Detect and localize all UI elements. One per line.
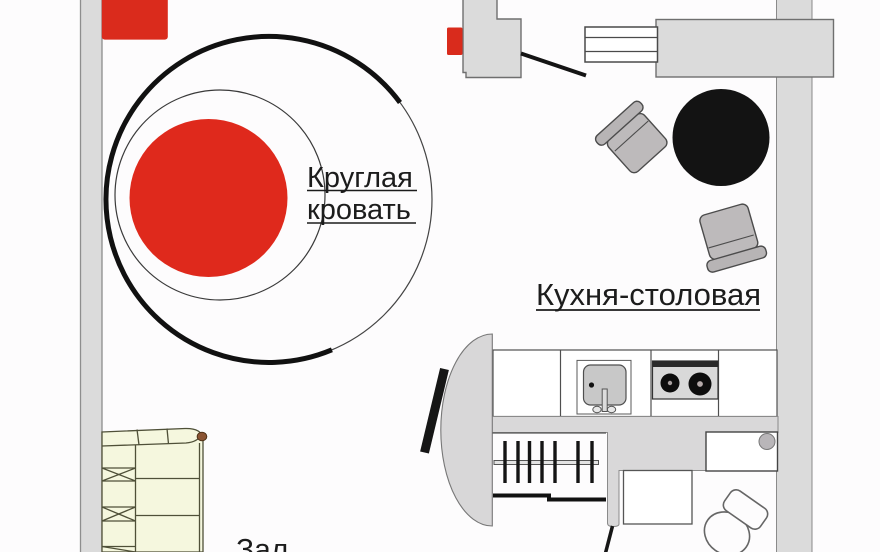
svg-text:Зал: Зал — [236, 534, 288, 552]
svg-text:Круглая: Круглая — [307, 162, 413, 194]
svg-text:Кухня-столовая: Кухня-столовая — [536, 277, 761, 312]
svg-text:кровать: кровать — [307, 194, 411, 226]
